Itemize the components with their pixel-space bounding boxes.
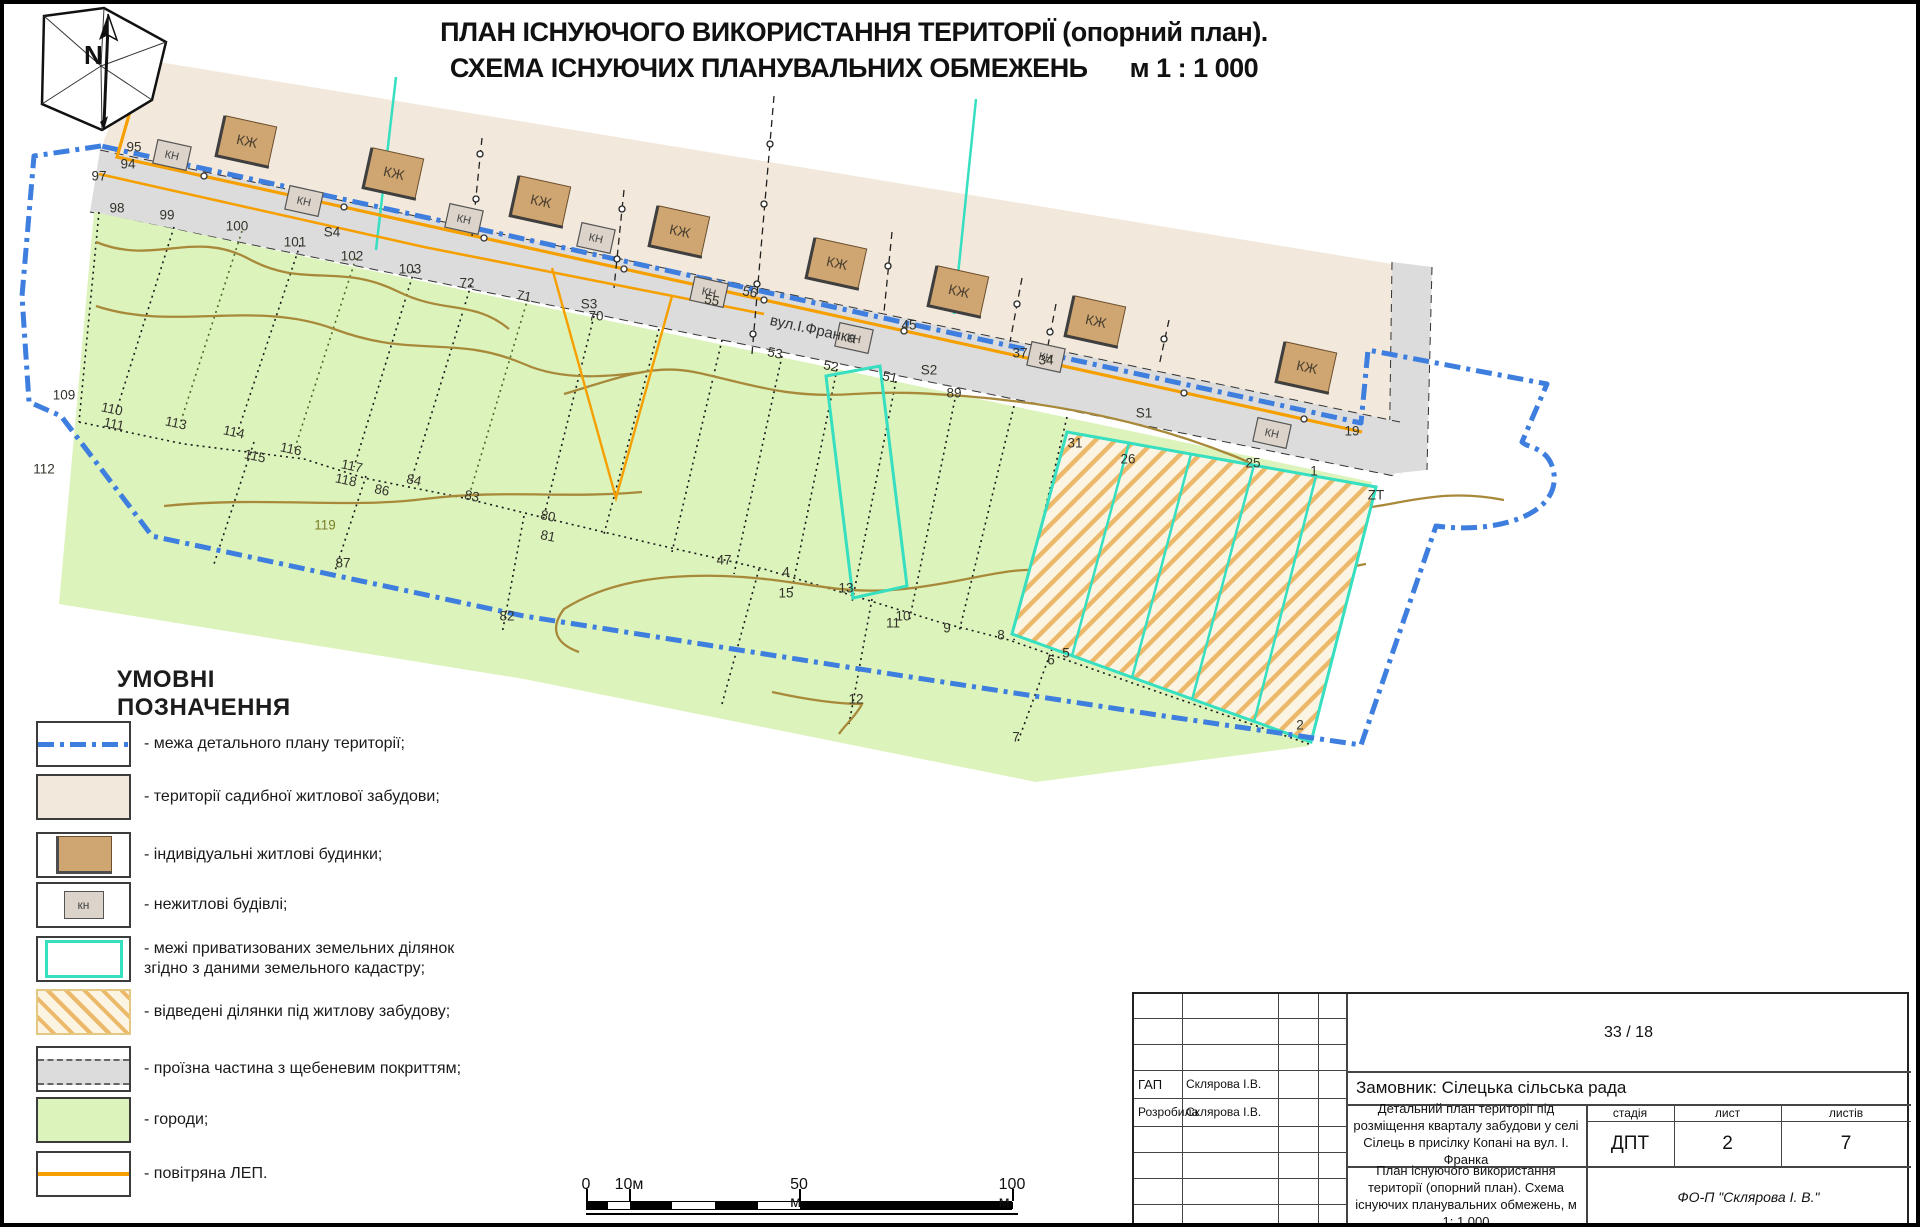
legend-item-boundary: - межа детального плану території; bbox=[36, 721, 796, 767]
legend-item-residential-zone: - території садибної житлової забудови; bbox=[36, 774, 796, 820]
power-line-swatch bbox=[36, 1151, 131, 1197]
stamp-stage-header: стадія bbox=[1586, 1104, 1674, 1121]
legend-label: - індивідуальні житлові будинки; bbox=[144, 845, 382, 865]
stamp-sheets-value: 7 bbox=[1781, 1121, 1911, 1166]
cadastre-swatch bbox=[36, 936, 131, 982]
scale-bar-baseline bbox=[586, 1213, 1018, 1215]
legend-item-non-residential: кн - нежитлові будівлі; bbox=[36, 882, 796, 928]
legend-label: - проїзна частина з щебеневим покриттям; bbox=[144, 1059, 461, 1079]
scale-bar-segment bbox=[587, 1202, 608, 1209]
legend-item-road: - проїзна частина з щебеневим покриттям; bbox=[36, 1046, 796, 1092]
kn-swatch-label: кн bbox=[64, 891, 104, 919]
legend-label: - межі приватизованих земельних ділянок … bbox=[144, 939, 454, 979]
svg-text:N: N bbox=[84, 40, 103, 70]
stamp-stage-value: ДПТ bbox=[1586, 1121, 1674, 1166]
stamp-project-number: 33 / 18 bbox=[1346, 994, 1911, 1071]
boundary-line-swatch bbox=[36, 721, 131, 767]
stamp-sheet-title: План існуючого використання території (о… bbox=[1348, 1166, 1584, 1227]
legend-label: - нежитлові будівлі; bbox=[144, 895, 288, 915]
stamp-sheets-header: листів bbox=[1781, 1104, 1911, 1121]
legend-heading: УМОВНІ ПОЗНАЧЕННЯ bbox=[117, 666, 291, 722]
gardens-swatch bbox=[36, 1097, 131, 1143]
road-swatch bbox=[36, 1046, 131, 1092]
scale-bar-tick bbox=[586, 1189, 588, 1201]
kn-swatch: кн bbox=[36, 882, 131, 928]
stamp-role-name: Склярова І.В. bbox=[1186, 1098, 1278, 1126]
title-block-stamp: ГАП Склярова І.В. Розробила Склярова І.В… bbox=[1132, 992, 1909, 1226]
stamp-sheet-value: 2 bbox=[1674, 1121, 1781, 1166]
stamp-role: ГАП bbox=[1138, 1070, 1182, 1098]
legend-item-power-line: - повітряна ЛЕП. bbox=[36, 1151, 796, 1197]
legend-label: - межа детального плану території; bbox=[144, 734, 405, 754]
scale-bar-segment bbox=[608, 1202, 630, 1209]
stamp-role: Розробила bbox=[1138, 1098, 1182, 1126]
legend-label: - городи; bbox=[144, 1110, 208, 1130]
plan-sheet: N КНКНКНКНКНКНКНКН КЖКЖКЖКЖКЖКЖКЖКЖ 9594… bbox=[0, 0, 1920, 1227]
house-swatch bbox=[36, 832, 131, 878]
legend-label: - повітряна ЛЕП. bbox=[144, 1164, 267, 1184]
scale-bar-tick bbox=[1012, 1189, 1014, 1201]
legend-item-houses: - індивідуальні житлові будинки; bbox=[36, 832, 796, 878]
scale-bar-segment bbox=[630, 1202, 672, 1209]
legend-item-allocated: - відведені ділянки під житлову забудову… bbox=[36, 989, 796, 1035]
legend-label: - відведені ділянки під житлову забудову… bbox=[144, 1002, 450, 1022]
stamp-company: ФО-П "Склярова І. В." bbox=[1586, 1166, 1911, 1227]
allocated-swatch bbox=[36, 989, 131, 1035]
legend-label: - території садибної житлової забудови; bbox=[144, 787, 440, 807]
scale-bar-segment bbox=[800, 1202, 1013, 1209]
scale-bar-segment bbox=[672, 1202, 715, 1209]
residential-zone-swatch bbox=[36, 774, 131, 820]
legend-item-cadastre: - межі приватизованих земельних ділянок … bbox=[36, 936, 796, 982]
stamp-project-title: Детальний план території під розміщення … bbox=[1348, 1104, 1584, 1166]
stamp-role-name: Склярова І.В. bbox=[1186, 1070, 1278, 1098]
scale-bar-segment bbox=[715, 1202, 758, 1209]
scale-bar-tick bbox=[799, 1189, 801, 1201]
scale-bar-tick bbox=[629, 1189, 631, 1201]
stamp-sheet-header: лист bbox=[1674, 1104, 1781, 1121]
stamp-customer: Замовник: Сілецька сільська рада bbox=[1356, 1071, 1911, 1104]
legend-item-gardens: - городи; bbox=[36, 1097, 796, 1143]
